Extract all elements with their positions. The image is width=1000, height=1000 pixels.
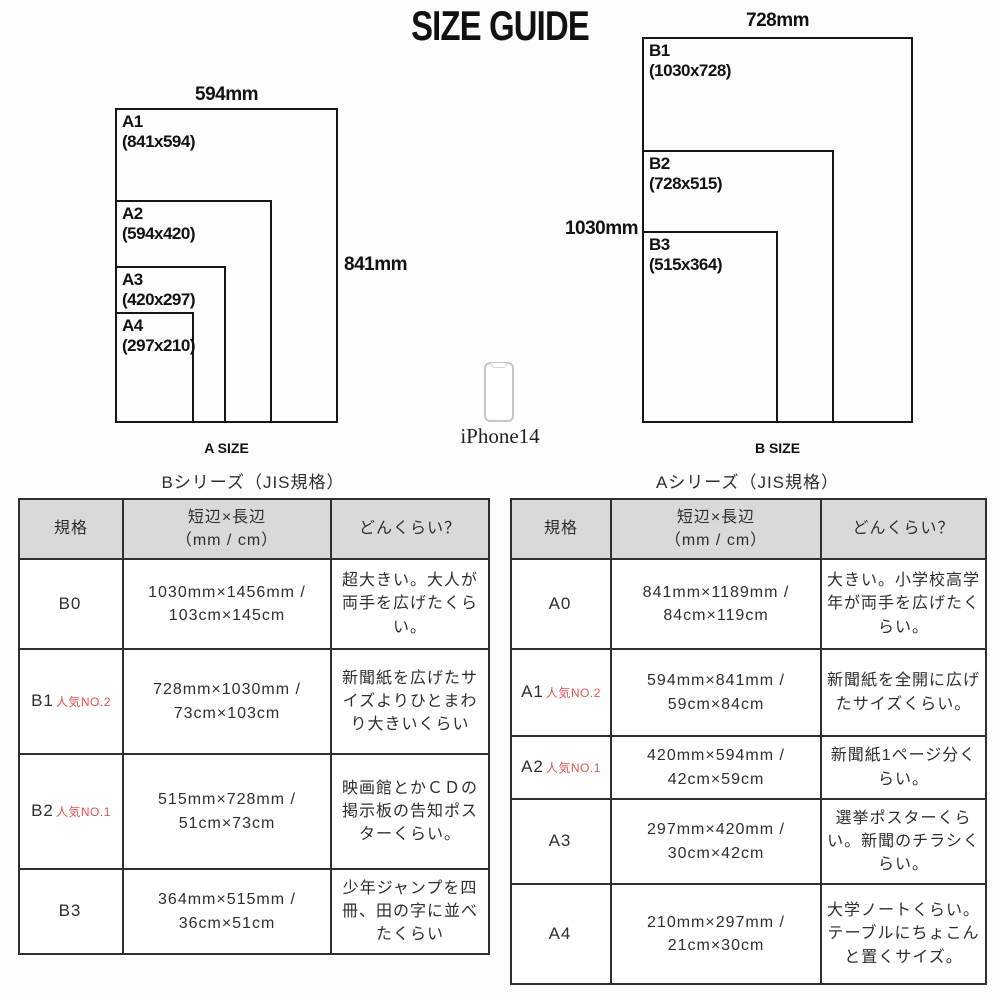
b-header-desc: どんくらい？ [331,499,489,559]
paper-label-a2: A2 (594x420) [122,204,195,243]
table-row-a2: A2人気NO.1 420mm×594mm / 42cm×59cm 新聞紙1ページ… [511,736,986,799]
table-row-a1: A1人気NO.2 594mm×841mm / 59cm×84cm 新聞紙を全開に… [511,649,986,736]
b-header-size: 規格 [19,499,123,559]
cell-desc: 新聞紙1ページ分くらい。 [821,736,986,799]
b-series-table: 規格 短辺×長辺 （mm / cm） どんくらい？ B0 1030mm×1456… [18,498,490,955]
a-height-dimension-label: 841mm [344,254,407,276]
b-width-dimension-label: 728mm [642,10,913,32]
cell-dims: 420mm×594mm / 42cm×59cm [611,736,821,799]
paper-label-a1: A1 (841x594) [122,112,195,151]
iphone-illustration [484,362,514,422]
cell-size: A0 [511,559,611,649]
a-series-table: 規格 短辺×長辺 （mm / cm） どんくらい？ A0 841mm×1189m… [510,498,987,985]
table-row-a0: A0 841mm×1189mm / 84cm×119cm 大きい。小学校高学年が… [511,559,986,649]
paper-label-b1: B1 (1030x728) [649,41,731,80]
popular-badge: 人気NO.1 [56,805,111,819]
table-row-b3: B3 364mm×515mm / 36cm×51cm 少年ジャンプを四冊、田の字… [19,869,489,954]
cell-size: B0 [19,559,123,649]
table-row-a4: A4 210mm×297mm / 21cm×30cm 大学ノートくらい。テーブル… [511,884,986,984]
cell-dims: 210mm×297mm / 21cm×30cm [611,884,821,984]
b-header-row: 規格 短辺×長辺 （mm / cm） どんくらい？ [19,499,489,559]
paper-rect-b3: B3 (515x364) [642,231,778,423]
cell-desc: 少年ジャンプを四冊、田の字に並べたくらい [331,869,489,954]
cell-size: A3 [511,799,611,884]
cell-dims: 841mm×1189mm / 84cm×119cm [611,559,821,649]
iphone-label: iPhone14 [440,424,560,449]
cell-dims: 1030mm×1456mm / 103cm×145cm [123,559,331,649]
cell-size: B3 [19,869,123,954]
a-size-caption: A SIZE [115,440,338,456]
size-guide-page: SIZE GUIDE 594mm A1 (841x594) A2 (594x42… [0,0,1000,1000]
cell-desc: 大学ノートくらい。テーブルにちょこんと置くサイズ。 [821,884,986,984]
cell-desc: 超大きい。大人が両手を広げたくらい。 [331,559,489,649]
cell-dims: 297mm×420mm / 30cm×42cm [611,799,821,884]
b-series-table-title: Bシリーズ（JIS規格） [18,468,488,493]
a-series-table-title: Aシリーズ（JIS規格） [510,468,985,493]
cell-size: A2人気NO.1 [511,736,611,799]
table-row-b0: B0 1030mm×1456mm / 103cm×145cm 超大きい。大人が両… [19,559,489,649]
cell-desc: 新聞紙を全開に広げたサイズくらい。 [821,649,986,736]
b-header-dims: 短辺×長辺 （mm / cm） [123,499,331,559]
cell-dims: 364mm×515mm / 36cm×51cm [123,869,331,954]
cell-size: A1人気NO.2 [511,649,611,736]
a-header-size: 規格 [511,499,611,559]
cell-desc: 選挙ポスターくらい。新聞のチラシくらい。 [821,799,986,884]
table-row-b2: B2人気NO.1 515mm×728mm / 51cm×73cm 映画館とかＣＤ… [19,754,489,869]
cell-size: B1人気NO.2 [19,649,123,754]
cell-desc: 大きい。小学校高学年が両手を広げたくらい。 [821,559,986,649]
b-size-caption: B SIZE [642,440,913,456]
cell-dims: 728mm×1030mm / 73cm×103cm [123,649,331,754]
cell-dims: 594mm×841mm / 59cm×84cm [611,649,821,736]
a-header-desc: どんくらい？ [821,499,986,559]
table-row-a3: A3 297mm×420mm / 30cm×42cm 選挙ポスターくらい。新聞の… [511,799,986,884]
a-width-dimension-label: 594mm [115,84,338,106]
cell-size: A4 [511,884,611,984]
paper-label-b2: B2 (728x515) [649,154,722,193]
cell-desc: 映画館とかＣＤの掲示板の告知ポスターくらい。 [331,754,489,869]
b-height-dimension-label: 1030mm [556,218,638,240]
paper-label-b3: B3 (515x364) [649,235,722,274]
cell-dims: 515mm×728mm / 51cm×73cm [123,754,331,869]
popular-badge: 人気NO.2 [546,686,601,700]
paper-label-a3: A3 (420x297) [122,270,195,309]
a-header-dims: 短辺×長辺 （mm / cm） [611,499,821,559]
a-header-row: 規格 短辺×長辺 （mm / cm） どんくらい？ [511,499,986,559]
popular-badge: 人気NO.1 [546,761,601,775]
paper-rect-a4: A4 (297x210) [115,312,194,423]
paper-label-a4: A4 (297x210) [122,316,195,355]
table-row-b1: B1人気NO.2 728mm×1030mm / 73cm×103cm 新聞紙を広… [19,649,489,754]
iphone-notch [491,363,507,368]
popular-badge: 人気NO.2 [56,695,111,709]
cell-desc: 新聞紙を広げたサイズよりひとまわり大きいくらい [331,649,489,754]
cell-size: B2人気NO.1 [19,754,123,869]
